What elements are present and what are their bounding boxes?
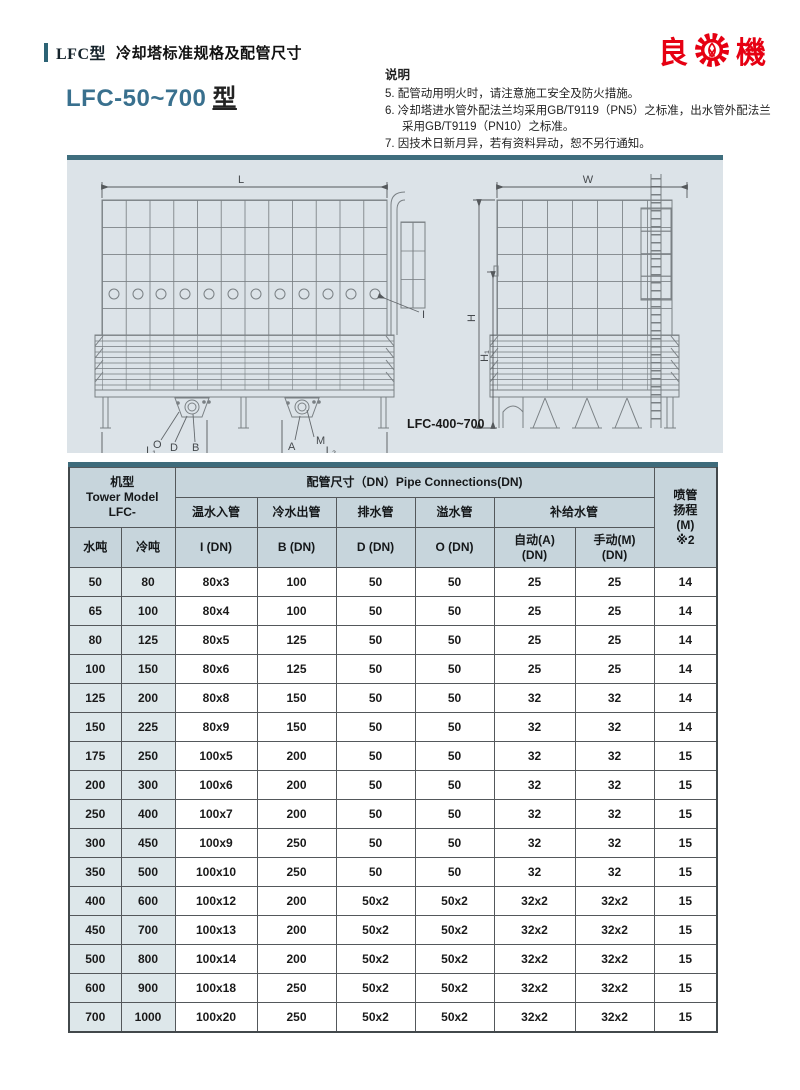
- table-cell: 32: [494, 829, 575, 858]
- table-cell: 14: [654, 684, 717, 713]
- table-cell: 50x2: [336, 1003, 415, 1032]
- header-col-o: O (DN): [415, 528, 494, 568]
- table-cell: 80: [121, 568, 175, 597]
- drawing-labels: L W H H₁ L₁ L₂ I O D B A M: [146, 174, 594, 453]
- table-cell: 150: [257, 713, 336, 742]
- table-cell: 32: [494, 858, 575, 887]
- header-spray-lift: 喷管 扬程 (M) ※2: [654, 468, 717, 568]
- table-cell: 15: [654, 800, 717, 829]
- table-cell: 200: [257, 771, 336, 800]
- table-row: 250400100x72005050323215: [69, 800, 717, 829]
- header-col-i: I (DN): [175, 528, 257, 568]
- table-cell: 50x2: [336, 945, 415, 974]
- table-cell: 500: [69, 945, 121, 974]
- header-warm-inlet: 温水入管: [175, 498, 257, 528]
- table-cell: 25: [575, 626, 654, 655]
- table-cell: 32: [575, 713, 654, 742]
- table-row: 8012580x51255050252514: [69, 626, 717, 655]
- table-row: 350500100x102505050323215: [69, 858, 717, 887]
- table-cell: 100x6: [175, 771, 257, 800]
- table-cell: 80x5: [175, 626, 257, 655]
- header-drain: 排水管: [336, 498, 415, 528]
- table-cell: 100x5: [175, 742, 257, 771]
- table-cell: 14: [654, 597, 717, 626]
- table-cell: 25: [575, 655, 654, 684]
- table-cell: 65: [69, 597, 121, 626]
- table-cell: 200: [257, 945, 336, 974]
- table-cell: 400: [121, 800, 175, 829]
- table-cell: 200: [257, 800, 336, 829]
- table-cell: 250: [257, 974, 336, 1003]
- table-cell: 125: [69, 684, 121, 713]
- note-item: 5. 配管动用明火时，请注意施工安全及防火措施。: [385, 86, 777, 103]
- table-cell: 50: [336, 626, 415, 655]
- accent-bar: [44, 43, 48, 62]
- table-cell: 32: [575, 684, 654, 713]
- table-cell: 50: [336, 684, 415, 713]
- header-water-ton: 水吨: [69, 528, 121, 568]
- table-cell: 350: [69, 858, 121, 887]
- table-cell: 32: [575, 858, 654, 887]
- page-title: 冷却塔标准规格及配管尺寸: [116, 42, 302, 63]
- catalog-page: LFC型 冷却塔标准规格及配管尺寸 良 機 LFC-50~700型 说明 5. …: [0, 0, 800, 1090]
- tower-side-view: [490, 174, 679, 428]
- table-cell: 200: [69, 771, 121, 800]
- table-cell: 80x4: [175, 597, 257, 626]
- table-cell: 25: [494, 626, 575, 655]
- table-cell: 15: [654, 742, 717, 771]
- table-cell: 32x2: [575, 916, 654, 945]
- table-cell: 25: [494, 568, 575, 597]
- table-row: 12520080x81505050323214: [69, 684, 717, 713]
- table-cell: 32: [494, 771, 575, 800]
- label-A: A: [288, 441, 296, 453]
- table-row: 7001000100x2025050x250x232x232x215: [69, 1003, 717, 1032]
- table-cell: 32x2: [494, 1003, 575, 1032]
- table-cell: 200: [257, 887, 336, 916]
- table-cell: 50: [415, 771, 494, 800]
- table-cell: 50: [336, 713, 415, 742]
- table-cell: 50: [415, 858, 494, 887]
- table-cell: 50: [336, 568, 415, 597]
- gear-icon: [694, 32, 730, 68]
- drawing-caption: LFC-400~700: [407, 417, 485, 431]
- header-col-auto: 自动(A)(DN): [494, 528, 575, 568]
- header-makeup: 补给水管: [494, 498, 654, 528]
- table-cell: 50: [415, 684, 494, 713]
- table-cell: 50: [336, 858, 415, 887]
- table-row: 400600100x1220050x250x232x232x215: [69, 887, 717, 916]
- table-cell: 100x18: [175, 974, 257, 1003]
- table-cell: 50x2: [415, 887, 494, 916]
- table-cell: 14: [654, 626, 717, 655]
- table-cell: 100: [257, 568, 336, 597]
- table-cell: 50x2: [336, 887, 415, 916]
- table-cell: 14: [654, 655, 717, 684]
- series-label: LFC型: [56, 40, 106, 64]
- table-row: 600900100x1825050x250x232x232x215: [69, 974, 717, 1003]
- table-row: 15022580x91505050323214: [69, 713, 717, 742]
- table-cell: 100x7: [175, 800, 257, 829]
- table-cell: 100x12: [175, 887, 257, 916]
- table-cell: 32: [494, 742, 575, 771]
- table-cell: 25: [494, 597, 575, 626]
- table-cell: 300: [69, 829, 121, 858]
- note-item: 7. 因技术日新月异，若有资料异动，恕不另行通知。: [385, 136, 777, 153]
- table-cell: 32x2: [575, 945, 654, 974]
- header-col-d: D (DN): [336, 528, 415, 568]
- table-cell: 250: [257, 858, 336, 887]
- table-cell: 200: [257, 742, 336, 771]
- table-cell: 15: [654, 945, 717, 974]
- table-cell: 100: [257, 597, 336, 626]
- table-cell: 15: [654, 916, 717, 945]
- table-cell: 32: [575, 742, 654, 771]
- table-cell: 125: [257, 655, 336, 684]
- table-cell: 25: [575, 568, 654, 597]
- table-cell: 50: [415, 713, 494, 742]
- table-cell: 50: [69, 568, 121, 597]
- table-cell: 80x3: [175, 568, 257, 597]
- table-cell: 15: [654, 771, 717, 800]
- cooling-tower-drawing: L W H H₁ L₁ L₂ I O D B A M LFC-400~700: [67, 160, 723, 453]
- table-cell: 50: [415, 568, 494, 597]
- table-cell: 100x14: [175, 945, 257, 974]
- table-cell: 100x9: [175, 829, 257, 858]
- spec-table-wrap: 机型 Tower Model LFC- 配管尺寸（DN）Pipe Connect…: [68, 462, 718, 1033]
- tower-front-view: [95, 192, 425, 428]
- label-D: D: [170, 442, 178, 453]
- dim-label-L: L: [238, 174, 244, 186]
- header-cold-outlet: 冷水出管: [257, 498, 336, 528]
- table-cell: 100: [121, 597, 175, 626]
- header-col-manual: 手动(M)(DN): [575, 528, 654, 568]
- label-B: B: [192, 442, 199, 453]
- table-cell: 32x2: [494, 916, 575, 945]
- table-cell: 80x8: [175, 684, 257, 713]
- table-cell: 50: [415, 626, 494, 655]
- table-cell: 100x20: [175, 1003, 257, 1032]
- table-cell: 150: [121, 655, 175, 684]
- drawing-panel: L W H H₁ L₁ L₂ I O D B A M LFC-400~700: [67, 155, 723, 453]
- table-cell: 600: [121, 887, 175, 916]
- table-cell: 225: [121, 713, 175, 742]
- table-cell: 50: [336, 800, 415, 829]
- label-M: M: [316, 435, 325, 447]
- model-heading: LFC-50~700型: [66, 78, 237, 113]
- table-cell: 32x2: [575, 887, 654, 916]
- table-cell: 32: [494, 713, 575, 742]
- table-cell: 80: [69, 626, 121, 655]
- table-cell: 250: [69, 800, 121, 829]
- table-cell: 100x13: [175, 916, 257, 945]
- header-model-group: 机型 Tower Model LFC-: [69, 468, 175, 528]
- table-cell: 100: [69, 655, 121, 684]
- table-row: 175250100x52005050323215: [69, 742, 717, 771]
- table-cell: 50x2: [336, 974, 415, 1003]
- table-cell: 32x2: [494, 974, 575, 1003]
- table-cell: 50: [336, 771, 415, 800]
- table-cell: 250: [257, 829, 336, 858]
- table-cell: 80x6: [175, 655, 257, 684]
- pipe-assembly-right: [285, 398, 320, 417]
- table-cell: 400: [69, 887, 121, 916]
- table-cell: 50: [336, 597, 415, 626]
- page-header: LFC型 冷却塔标准规格及配管尺寸: [44, 40, 302, 64]
- header-pipe-group: 配管尺寸（DN）Pipe Connections(DN): [175, 468, 654, 498]
- table-cell: 250: [121, 742, 175, 771]
- table-cell: 50: [336, 829, 415, 858]
- table-cell: 15: [654, 829, 717, 858]
- table-cell: 32: [575, 829, 654, 858]
- table-cell: 50: [336, 742, 415, 771]
- table-row: 508080x31005050252514: [69, 568, 717, 597]
- model-range: LFC-50~700: [66, 85, 206, 112]
- label-O: O: [153, 439, 162, 451]
- table-cell: 50: [415, 655, 494, 684]
- table-cell: 450: [121, 829, 175, 858]
- model-suffix: 型: [212, 85, 237, 112]
- table-row: 10015080x61255050252514: [69, 655, 717, 684]
- table-cell: 32x2: [494, 887, 575, 916]
- table-cell: 50x2: [336, 916, 415, 945]
- table-cell: 15: [654, 1003, 717, 1032]
- notes-block: 说明 5. 配管动用明火时，请注意施工安全及防火措施。 6. 冷却塔进水管外配法…: [385, 66, 777, 153]
- table-cell: 250: [257, 1003, 336, 1032]
- table-cell: 15: [654, 887, 717, 916]
- header-col-b: B (DN): [257, 528, 336, 568]
- label-I: I: [422, 309, 425, 321]
- header-cool-ton: 冷吨: [121, 528, 175, 568]
- table-cell: 14: [654, 713, 717, 742]
- table-cell: 50: [336, 655, 415, 684]
- table-cell: 32: [575, 771, 654, 800]
- table-row: 300450100x92505050323215: [69, 829, 717, 858]
- table-cell: 800: [121, 945, 175, 974]
- spec-table: 机型 Tower Model LFC- 配管尺寸（DN）Pipe Connect…: [68, 467, 718, 1033]
- table-cell: 1000: [121, 1003, 175, 1032]
- table-cell: 32x2: [575, 1003, 654, 1032]
- table-cell: 125: [121, 626, 175, 655]
- table-cell: 200: [121, 684, 175, 713]
- table-cell: 100x10: [175, 858, 257, 887]
- dim-label-W: W: [583, 174, 594, 186]
- table-cell: 150: [69, 713, 121, 742]
- table-cell: 15: [654, 974, 717, 1003]
- table-cell: 700: [69, 1003, 121, 1032]
- table-row: 6510080x41005050252514: [69, 597, 717, 626]
- dim-label-H1: H₁: [479, 350, 491, 362]
- table-cell: 50x2: [415, 945, 494, 974]
- table-cell: 50x2: [415, 974, 494, 1003]
- table-row: 450700100x1320050x250x232x232x215: [69, 916, 717, 945]
- spec-table-body: 508080x310050502525146510080x41005050252…: [69, 568, 717, 1032]
- note-item: 6. 冷却塔进水管外配法兰均采用GB/T9119（PN5）之标准，出水管外配法兰…: [385, 103, 777, 136]
- table-cell: 125: [257, 626, 336, 655]
- table-cell: 50x2: [415, 1003, 494, 1032]
- table-cell: 15: [654, 858, 717, 887]
- header-overflow: 溢水管: [415, 498, 494, 528]
- dim-label-H: H: [466, 314, 478, 322]
- table-cell: 50: [415, 800, 494, 829]
- table-row: 500800100x1420050x250x232x232x215: [69, 945, 717, 974]
- dim-label-L2: L₂: [326, 445, 336, 453]
- table-cell: 50: [415, 742, 494, 771]
- table-cell: 32: [494, 800, 575, 829]
- table-cell: 80x9: [175, 713, 257, 742]
- notes-title: 说明: [385, 66, 777, 84]
- table-cell: 50x2: [415, 916, 494, 945]
- table-cell: 32: [494, 684, 575, 713]
- table-cell: 175: [69, 742, 121, 771]
- table-cell: 32x2: [494, 945, 575, 974]
- table-cell: 600: [69, 974, 121, 1003]
- table-cell: 32: [575, 800, 654, 829]
- table-cell: 14: [654, 568, 717, 597]
- table-cell: 700: [121, 916, 175, 945]
- table-cell: 450: [69, 916, 121, 945]
- table-cell: 500: [121, 858, 175, 887]
- table-row: 200300100x62005050323215: [69, 771, 717, 800]
- table-cell: 150: [257, 684, 336, 713]
- table-cell: 32x2: [575, 974, 654, 1003]
- table-cell: 900: [121, 974, 175, 1003]
- table-cell: 300: [121, 771, 175, 800]
- table-cell: 50: [415, 829, 494, 858]
- table-cell: 25: [575, 597, 654, 626]
- table-cell: 200: [257, 916, 336, 945]
- table-cell: 50: [415, 597, 494, 626]
- table-cell: 25: [494, 655, 575, 684]
